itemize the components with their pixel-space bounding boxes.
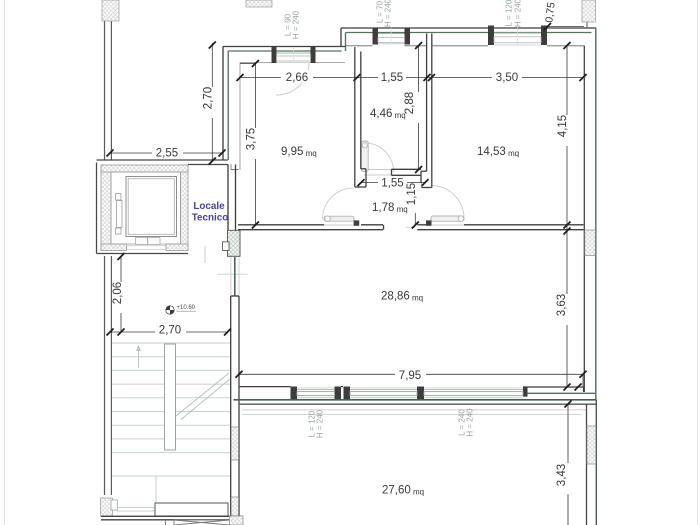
svg-text:H = 240: H = 240 bbox=[514, 0, 523, 27]
svg-text:4,15: 4,15 bbox=[557, 115, 569, 137]
svg-text:3,43: 3,43 bbox=[556, 464, 568, 486]
svg-text:3,75: 3,75 bbox=[246, 128, 258, 150]
svg-text:H = 240: H = 240 bbox=[466, 408, 475, 437]
svg-text:2,70: 2,70 bbox=[203, 87, 215, 109]
svg-text:H = 240: H = 240 bbox=[316, 409, 325, 438]
svg-text:14,53 mq: 14,53 mq bbox=[477, 146, 519, 158]
svg-text:7,95: 7,95 bbox=[399, 370, 421, 382]
svg-text:H = 240: H = 240 bbox=[384, 0, 393, 27]
svg-text:H = 240: H = 240 bbox=[292, 10, 301, 39]
svg-text:1,78 mq: 1,78 mq bbox=[372, 202, 408, 214]
svg-text:L = 120: L = 120 bbox=[505, 0, 514, 26]
svg-text:1,55: 1,55 bbox=[381, 178, 403, 190]
svg-text:1,55: 1,55 bbox=[381, 72, 403, 84]
svg-text:3,63: 3,63 bbox=[556, 294, 568, 316]
svg-text:3,50: 3,50 bbox=[496, 72, 518, 84]
svg-text:Locale: Locale bbox=[193, 201, 225, 212]
svg-text:4,46 mq: 4,46 mq bbox=[370, 108, 406, 120]
svg-text:9,95 mq: 9,95 mq bbox=[281, 146, 317, 158]
svg-text:2,66: 2,66 bbox=[286, 72, 308, 84]
svg-text:27,60 mq: 27,60 mq bbox=[382, 485, 424, 497]
svg-text:2,55: 2,55 bbox=[156, 148, 178, 160]
svg-text:Tecnico: Tecnico bbox=[192, 213, 229, 224]
svg-text:2,88: 2,88 bbox=[404, 92, 416, 114]
svg-text:0,75: 0,75 bbox=[543, 1, 557, 23]
svg-text:1,15: 1,15 bbox=[406, 183, 418, 205]
svg-text:28,86 mq: 28,86 mq bbox=[381, 291, 423, 303]
svg-text:+10.60: +10.60 bbox=[177, 305, 196, 311]
svg-text:2,70: 2,70 bbox=[159, 325, 181, 337]
svg-text:2,06: 2,06 bbox=[112, 282, 124, 304]
